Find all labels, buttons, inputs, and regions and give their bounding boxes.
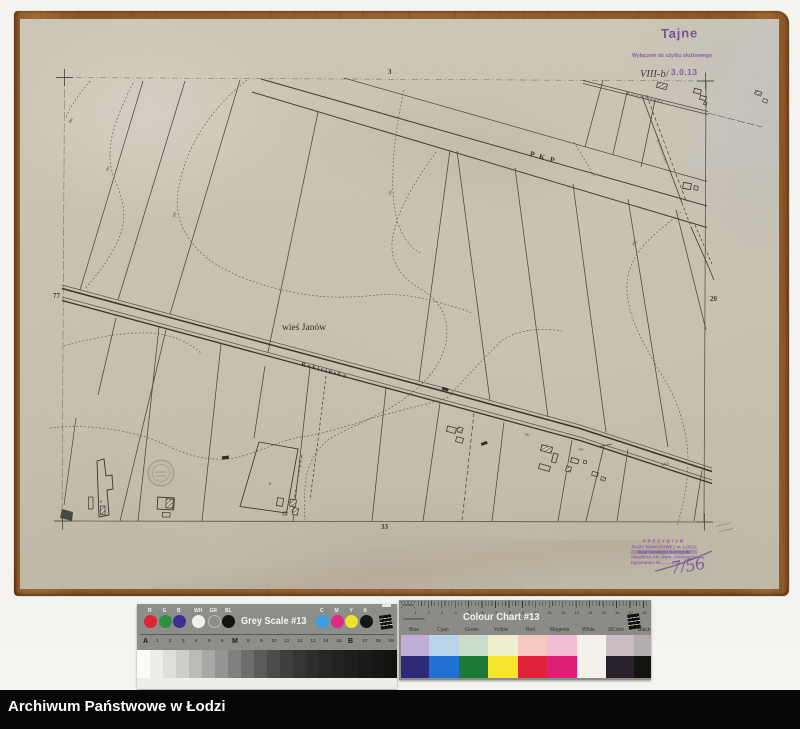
svg-text:20: 20 [710,295,718,303]
svg-text:Egzemplarz Nr.: Egzemplarz Nr. [631,560,662,565]
svg-text:77: 77 [53,292,61,300]
svg-text:PREZYDIUM: PREZYDIUM [643,539,685,544]
svg-text:3: 3 [388,68,392,76]
svg-text:33: 33 [381,523,389,531]
svg-text:Tajne: Tajne [661,25,698,41]
svg-text:Wyłącznie do użytku służbowego: Wyłącznie do użytku służbowego [632,53,712,59]
svg-text:RADY NARODOWEJ m. ŁODZI: RADY NARODOWEJ m. ŁODZI [632,544,697,549]
svg-text:3.0.13: 3.0.13 [671,67,698,77]
svg-text:VIII-b/: VIII-b/ [640,69,670,80]
svg-text:wieś Janów: wieś Janów [282,323,326,333]
svg-text:195: 195 [388,190,393,196]
